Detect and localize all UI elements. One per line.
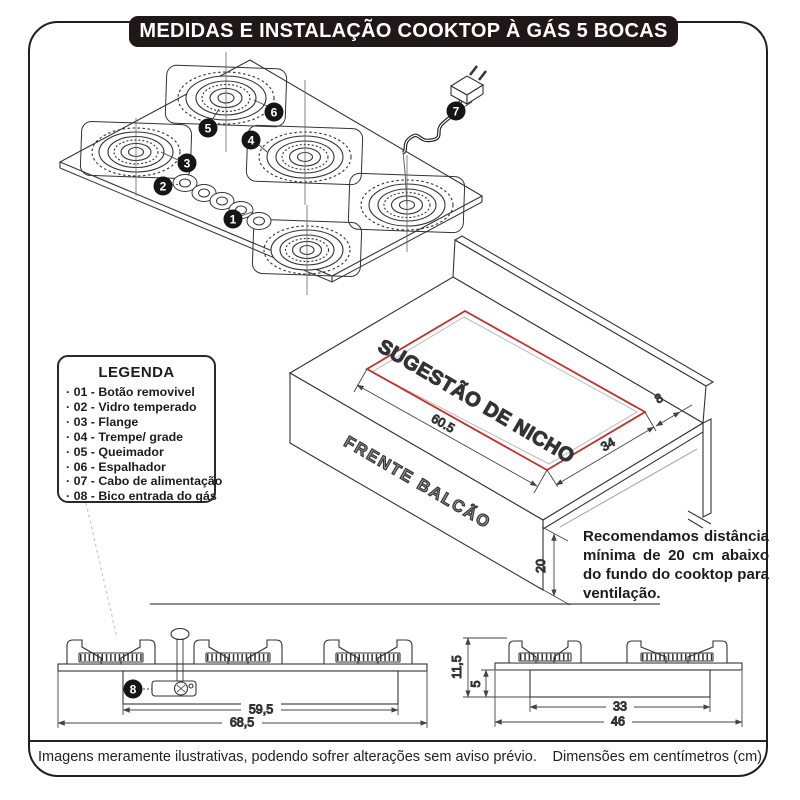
cooktop-isometric-drawing [60, 52, 486, 295]
clearance-value: 20 [534, 559, 548, 573]
callout-3-badge: 3 [178, 154, 197, 173]
burner-profile [67, 640, 155, 664]
legend-item-01: · 01 - Botão removivel [66, 385, 214, 400]
box-width-value: 33 [613, 700, 627, 714]
burner-profile [194, 640, 282, 664]
svg-text:6: 6 [271, 106, 278, 120]
counter-right-leg [703, 419, 711, 517]
legend-item-07: · 07 - Cabo de alimentação [66, 474, 214, 489]
ventilation-note: Recomendamos distância mínima de 20 cm a… [583, 527, 769, 603]
callout-7-badge: 7 [447, 102, 466, 121]
burner-profile [627, 641, 727, 663]
svg-text:3: 3 [184, 157, 191, 171]
box-depth-value: 5 [469, 680, 483, 687]
front-outer-width-value: 68,5 [230, 716, 254, 730]
side-view-drawing: 11,5 5 33 46 [450, 638, 742, 729]
burner-profile [509, 641, 581, 663]
glass-profile [495, 663, 742, 670]
knob [247, 213, 271, 230]
svg-text:4: 4 [248, 134, 255, 148]
front-view-drawing: 59,5 68,5 [58, 629, 427, 730]
callout-4-badge: 4 [242, 131, 261, 150]
power-plug-icon [451, 66, 486, 104]
callout-2-badge: 2 [154, 177, 173, 196]
callout-8-badge: 8 [124, 680, 143, 699]
svg-text:5: 5 [205, 122, 212, 136]
total-width-value: 46 [611, 715, 625, 729]
svg-text:8: 8 [130, 683, 137, 697]
callout-6-badge: 6 [265, 103, 284, 122]
legend-panel: LEGENDA · 01 - Botão removivel · 02 - Vi… [57, 355, 216, 503]
callout-5-badge: 5 [199, 119, 218, 138]
front-inner-width-value: 59,5 [249, 703, 273, 717]
instruction-sheet: MEDIDAS E INSTALAÇÃO COOKTOP À GÁS 5 BOC… [0, 0, 800, 800]
legend-title: LEGENDA [59, 364, 214, 381]
legend-items: · 01 - Botão removivel · 02 - Vidro temp… [59, 385, 214, 504]
legend-leader-line [86, 503, 117, 638]
legend-item-08: · 08 - Bico entrada do gás [66, 489, 214, 504]
legend-item-02: · 02 - Vidro temperado [66, 400, 214, 415]
legend-item-04: · 04 - Trempe/ grade [66, 430, 214, 445]
svg-text:2: 2 [160, 180, 167, 194]
legend-item-03: · 03 - Flange [66, 415, 214, 430]
counter-top [290, 277, 703, 520]
total-height-value: 11,5 [450, 655, 464, 678]
svg-text:1: 1 [230, 213, 237, 227]
burner-box-profile [530, 670, 710, 697]
burner-profile [324, 640, 412, 664]
legend-item-06: · 06 - Espalhador [66, 460, 214, 475]
glass-profile [58, 664, 427, 671]
callout-1-badge: 1 [224, 210, 243, 229]
legend-item-05: · 05 - Queimador [66, 445, 214, 460]
svg-text:7: 7 [453, 105, 460, 119]
gas-inlet-assembly [152, 629, 196, 697]
dimension-box-depth [481, 670, 530, 697]
